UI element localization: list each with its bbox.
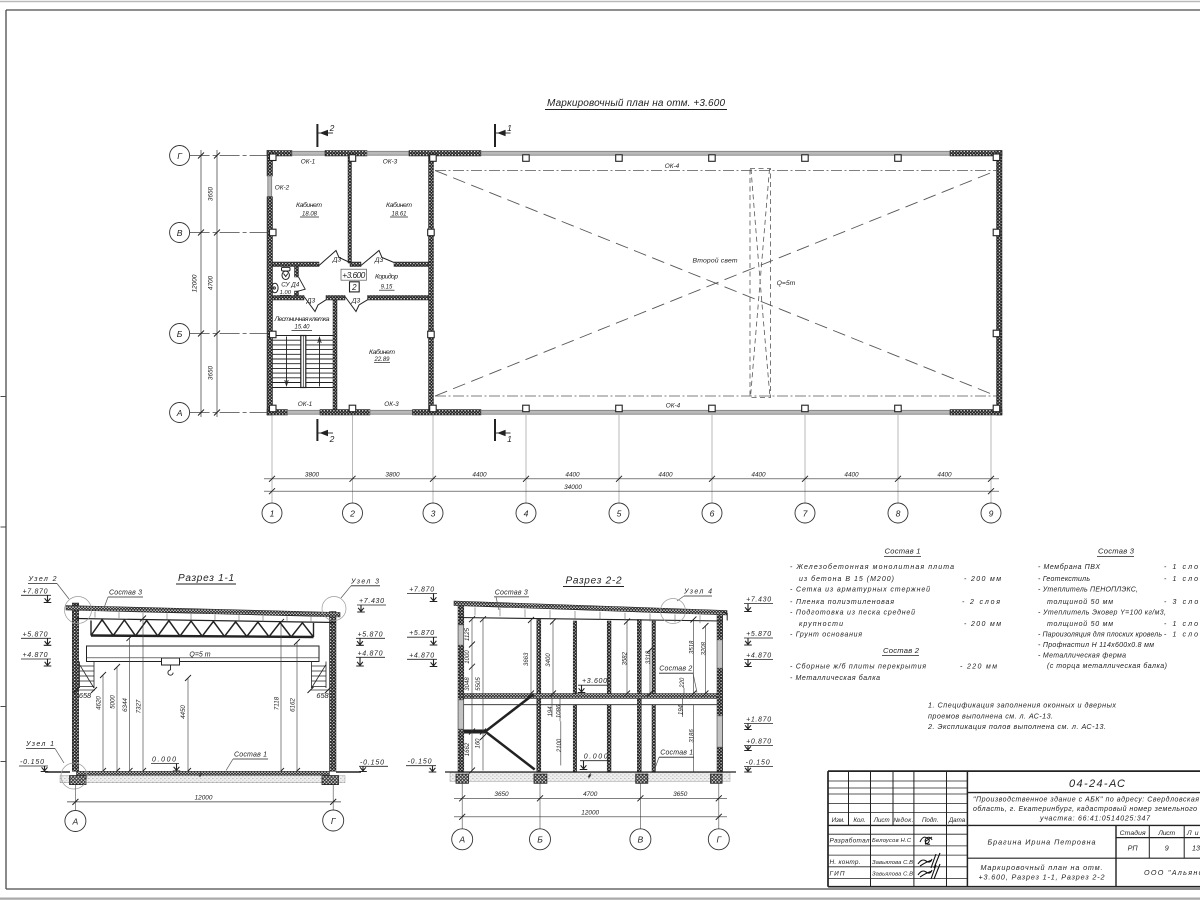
svg-text:4700: 4700 (208, 275, 215, 290)
svg-text:А: А (458, 835, 465, 845)
svg-text:+3.600: +3.600 (342, 270, 365, 280)
svg-text:12000: 12000 (195, 795, 213, 802)
svg-text:1: 1 (507, 434, 512, 444)
svg-text:ОК-3: ОК-3 (384, 401, 399, 408)
svg-text:Кабинет: Кабинет (296, 201, 322, 209)
svg-text:- Грунт основания: - Грунт основания (790, 631, 862, 638)
svg-text:Кол.: Кол. (853, 817, 865, 824)
svg-text:1086: 1086 (557, 704, 563, 718)
svg-text:- Пароизоляция для плоских кро: - Пароизоляция для плоских кровель (1038, 630, 1162, 638)
svg-text:Стадия: Стадия (1120, 829, 1146, 837)
svg-text:Лист: Лист (1157, 830, 1175, 837)
svg-text:12000: 12000 (192, 274, 199, 292)
svg-text:220: 220 (680, 677, 686, 689)
svg-text:4400: 4400 (937, 472, 952, 479)
svg-text:Дата: Дата (948, 817, 966, 824)
svg-text:Состав 1: Состав 1 (660, 750, 693, 757)
svg-text:18.08: 18.08 (302, 211, 318, 217)
svg-text:Б: Б (177, 329, 183, 339)
svg-text:1662: 1662 (465, 742, 471, 756)
svg-text:2: 2 (351, 283, 357, 292)
svg-text:ОК-3: ОК-3 (383, 159, 398, 166)
svg-text:3650: 3650 (673, 791, 688, 798)
svg-text:- Мембрана ПВХ: - Мембрана ПВХ (1038, 563, 1100, 571)
svg-text:1: 1 (507, 123, 512, 133)
svg-text:Лист: Лист (873, 817, 890, 824)
svg-text:- Геотекстиль: - Геотекстиль (1038, 576, 1090, 583)
svg-text:Н. контр.: Н. контр. (830, 859, 861, 866)
svg-text:+5.870: +5.870 (409, 630, 434, 637)
svg-text:участка: 66:41:0514025:347: участка: 66:41:0514025:347 (1039, 816, 1151, 823)
svg-text:ОК-4: ОК-4 (666, 403, 681, 410)
svg-text:3318: 3318 (646, 650, 652, 664)
svg-text:- 1 слой: - 1 слой (1164, 630, 1200, 638)
svg-text:Д3: Д3 (306, 298, 316, 305)
svg-text:Подп.: Подп. (922, 817, 938, 824)
svg-text:Состав 3: Состав 3 (109, 590, 142, 597)
svg-text:А: А (72, 816, 79, 826)
svg-text:+7.870: +7.870 (23, 588, 48, 595)
svg-text:Изм.: Изм. (832, 817, 845, 824)
svg-text:Состав 1: Состав 1 (234, 752, 267, 759)
svg-text:Узел 1: Узел 1 (25, 741, 54, 748)
svg-text:Кабинет: Кабинет (369, 348, 395, 356)
svg-text:+5.870: +5.870 (23, 631, 48, 638)
svg-text:8: 8 (896, 508, 901, 518)
svg-text:Коридор: Коридор (375, 273, 398, 281)
svg-text:- Сетка из арматурных стержней: - Сетка из арматурных стержней (790, 586, 930, 594)
svg-text:Разработал: Разработал (830, 836, 870, 844)
svg-text:Кабинет: Кабинет (386, 201, 412, 209)
svg-text:3518: 3518 (689, 640, 695, 654)
svg-text:№док.: №док. (893, 817, 913, 824)
svg-text:ОК-1: ОК-1 (298, 401, 313, 408)
svg-text:+4.870: +4.870 (358, 650, 383, 657)
svg-text:Состав 3: Состав 3 (1098, 547, 1135, 556)
svg-text:Завьялова С.В: Завьялова С.В (872, 871, 913, 877)
svg-text:- Сборные ж/б плиты перекрытия: - Сборные ж/б плиты перекрытия (790, 663, 926, 671)
svg-text:4400: 4400 (844, 472, 859, 479)
svg-text:3208: 3208 (701, 641, 707, 655)
svg-text:7327: 7327 (136, 699, 143, 713)
svg-text:2. Экспликация полов выполнена: 2. Экспликация полов выполнена см. л. АС… (927, 722, 1106, 731)
svg-text:+3.600, Разрез 1-1, Разрез 2-2: +3.600, Разрез 1-1, Разрез 2-2 (979, 872, 1105, 881)
svg-text:1000: 1000 (465, 650, 471, 664)
svg-text:6: 6 (710, 508, 715, 518)
svg-text:Состав 2: Состав 2 (883, 646, 920, 655)
svg-text:4400: 4400 (658, 472, 673, 479)
svg-text:658: 658 (316, 691, 329, 700)
svg-text:0.000: 0.000 (152, 757, 176, 764)
svg-text:3048: 3048 (465, 677, 471, 691)
svg-text:Завьялова С.В: Завьялова С.В (872, 860, 913, 866)
svg-text:ОК-2: ОК-2 (275, 185, 290, 192)
svg-text:5505: 5505 (476, 677, 482, 691)
svg-text:4400: 4400 (472, 472, 487, 479)
svg-text:- 1 слой: - 1 слой (1164, 575, 1200, 583)
svg-text:5000: 5000 (110, 695, 117, 709)
svg-text:ГИП: ГИП (830, 870, 845, 877)
svg-text:Д3: Д3 (332, 257, 342, 264)
svg-text:3800: 3800 (305, 472, 320, 479)
svg-text:194: 194 (679, 704, 685, 715)
svg-text:Лестничная клетка: Лестничная клетка (274, 316, 330, 323)
svg-text:+5.870: +5.870 (746, 631, 771, 638)
svg-text:4: 4 (524, 508, 529, 518)
svg-text:04-24-АС: 04-24-АС (1069, 778, 1125, 790)
svg-text:3650: 3650 (208, 186, 215, 201)
svg-text:1125: 1125 (465, 627, 471, 641)
svg-text:4450: 4450 (180, 705, 187, 719)
svg-text:3800: 3800 (385, 472, 400, 479)
svg-text:толщиной 50 мм: толщиной 50 мм (1047, 620, 1113, 628)
svg-text:- Железобетонная монолитная п: - Железобетонная монолитная плита (790, 563, 954, 571)
svg-text:- 3 слоя: - 3 слоя (1164, 599, 1200, 606)
svg-text:- 1 слой: - 1 слой (1164, 620, 1200, 628)
svg-text:- Утеплитель Эковер Y=100 кг/м: - Утеплитель Эковер Y=100 кг/м3, (1038, 609, 1166, 616)
svg-text:4400: 4400 (751, 472, 766, 479)
svg-text:+0.870: +0.870 (746, 739, 771, 746)
svg-text:Узел 2: Узел 2 (28, 576, 57, 583)
svg-text:3186: 3186 (689, 729, 695, 743)
svg-text:толщиной 50 мм: толщиной 50 мм (1047, 598, 1113, 606)
svg-text:3582: 3582 (623, 651, 629, 665)
svg-text:СУ Д4: СУ Д4 (281, 281, 300, 288)
svg-text:1. Спецификация заполнения око: 1. Спецификация заполнения оконных и две… (928, 701, 1116, 710)
svg-text:- 200 мм: - 200 мм (964, 576, 1001, 583)
svg-text:(с торца металлическая балка): (с торца металлическая балка) (1047, 662, 1167, 670)
svg-text:9: 9 (1165, 844, 1169, 853)
svg-text:0.000: 0.000 (584, 754, 608, 761)
svg-text:2: 2 (329, 123, 335, 133)
svg-text:7118: 7118 (274, 696, 281, 710)
svg-text:194: 194 (548, 706, 554, 717)
svg-text:Д3: Д3 (351, 298, 361, 305)
svg-text:- Металлическая балка: - Металлическая балка (790, 674, 880, 682)
svg-text:-0.150: -0.150 (360, 759, 384, 766)
svg-text:из бетона В 15 (М200): из бетона В 15 (М200) (799, 575, 894, 583)
svg-text:Б: Б (537, 835, 543, 845)
svg-text:+4.870: +4.870 (409, 652, 434, 659)
svg-text:+5.870: +5.870 (358, 631, 383, 638)
svg-text:Состав 3: Состав 3 (495, 589, 528, 596)
svg-text:2100: 2100 (557, 738, 563, 753)
svg-text:область, г. Екатеринбург, када: область, г. Екатеринбург, кадастровый но… (973, 805, 1197, 813)
svg-text:проемов выполнена см. л. АС-13: проемов выполнена см. л. АС-13. (928, 712, 1053, 721)
svg-text:6344: 6344 (122, 698, 129, 712)
svg-text:Маркировочный план на отм. +3.: Маркировочный план на отм. +3.600 (547, 98, 725, 109)
svg-text:+3.600: +3.600 (582, 678, 607, 685)
svg-text:Д3: Д3 (374, 257, 384, 264)
svg-text:2: 2 (349, 508, 355, 518)
svg-text:9: 9 (989, 508, 994, 518)
svg-text:3650: 3650 (208, 365, 215, 380)
svg-text:12000: 12000 (581, 810, 599, 817)
svg-text:РП: РП (1128, 844, 1139, 853)
svg-text:22.89: 22.89 (373, 357, 390, 363)
svg-text:В: В (177, 228, 183, 238)
svg-text:-0.150: -0.150 (408, 759, 432, 766)
svg-text:крупности: крупности (799, 621, 843, 628)
svg-text:Q=5 т: Q=5 т (189, 652, 210, 659)
svg-text:2: 2 (329, 434, 335, 444)
svg-text:1.00: 1.00 (280, 290, 292, 296)
svg-text:- 220 мм: - 220 мм (960, 664, 997, 671)
svg-text:-0.150: -0.150 (746, 760, 770, 767)
svg-text:В: В (638, 835, 644, 845)
svg-text:4700: 4700 (583, 791, 598, 798)
svg-text:3400: 3400 (546, 653, 552, 667)
svg-text:658: 658 (79, 691, 92, 700)
svg-text:ОК-1: ОК-1 (301, 159, 316, 166)
svg-text:+4.870: +4.870 (23, 652, 48, 659)
svg-text:3663: 3663 (524, 652, 530, 666)
svg-text:34000: 34000 (564, 484, 582, 491)
svg-text:+1.870: +1.870 (746, 717, 771, 724)
svg-text:- Подготовка из песка средней: - Подготовка из песка средней (790, 608, 915, 616)
svg-text:+4.870: +4.870 (746, 652, 771, 659)
svg-text:+7.430: +7.430 (746, 597, 771, 604)
svg-text:- Профнастил Н 114х600х0.8 мм: - Профнастил Н 114х600х0.8 мм (1038, 642, 1154, 649)
svg-text:- 1 слой: - 1 слой (1164, 563, 1200, 571)
svg-text:6162: 6162 (290, 698, 297, 712)
svg-text:Узел 4: Узел 4 (683, 589, 712, 596)
svg-text:9.15: 9.15 (381, 284, 393, 290)
svg-text:ООО "Альянс": ООО "Альянс" (1144, 868, 1200, 877)
svg-text:- Утеплитель ПЕНОПЛЭКС,: - Утеплитель ПЕНОПЛЭКС, (1038, 587, 1138, 594)
svg-text:-0.150: -0.150 (20, 759, 44, 766)
svg-text:13: 13 (1192, 844, 1200, 853)
svg-text:- Пленка полиэтиленовая: - Пленка полиэтиленовая (790, 599, 894, 606)
svg-text:4620: 4620 (96, 696, 103, 710)
svg-text:ОК-4: ОК-4 (665, 163, 680, 170)
svg-text:+7.870: +7.870 (409, 587, 434, 594)
svg-text:Маркировочный план на отм.: Маркировочный план на отм. (981, 863, 1103, 872)
svg-text:А: А (176, 408, 183, 418)
svg-text:Разрез 1-1: Разрез 1-1 (178, 573, 234, 584)
svg-text:3650: 3650 (494, 791, 509, 798)
svg-text:- 200 мм: - 200 мм (964, 621, 1001, 628)
svg-text:"Производственное здание с АБК: "Производственное здание с АБК" по адрес… (973, 796, 1199, 804)
svg-text:5: 5 (617, 508, 622, 518)
svg-text:4400: 4400 (565, 472, 580, 479)
svg-text:Q=5т: Q=5т (777, 280, 796, 287)
svg-text:Разрез 2-2: Разрез 2-2 (566, 576, 622, 587)
svg-text:Второй свет: Второй свет (693, 257, 738, 265)
svg-text:+7.430: +7.430 (359, 598, 384, 605)
svg-text:Состав 1: Состав 1 (885, 547, 921, 556)
svg-text:160: 160 (476, 738, 482, 749)
svg-text:Состав 2: Состав 2 (659, 666, 692, 673)
svg-text:Узел 3: Узел 3 (350, 578, 379, 585)
svg-text:Брагина Ирина Петровна: Брагина Ирина Петровна (988, 838, 1096, 847)
svg-text:3: 3 (431, 508, 436, 518)
svg-text:18.61: 18.61 (391, 211, 406, 217)
svg-text:Белоусов Н.С: Белоусов Н.С (872, 838, 912, 844)
svg-text:15.40: 15.40 (294, 325, 310, 331)
svg-text:1: 1 (270, 508, 275, 518)
svg-text:- Металлическая ферма: - Металлическая ферма (1038, 653, 1126, 660)
